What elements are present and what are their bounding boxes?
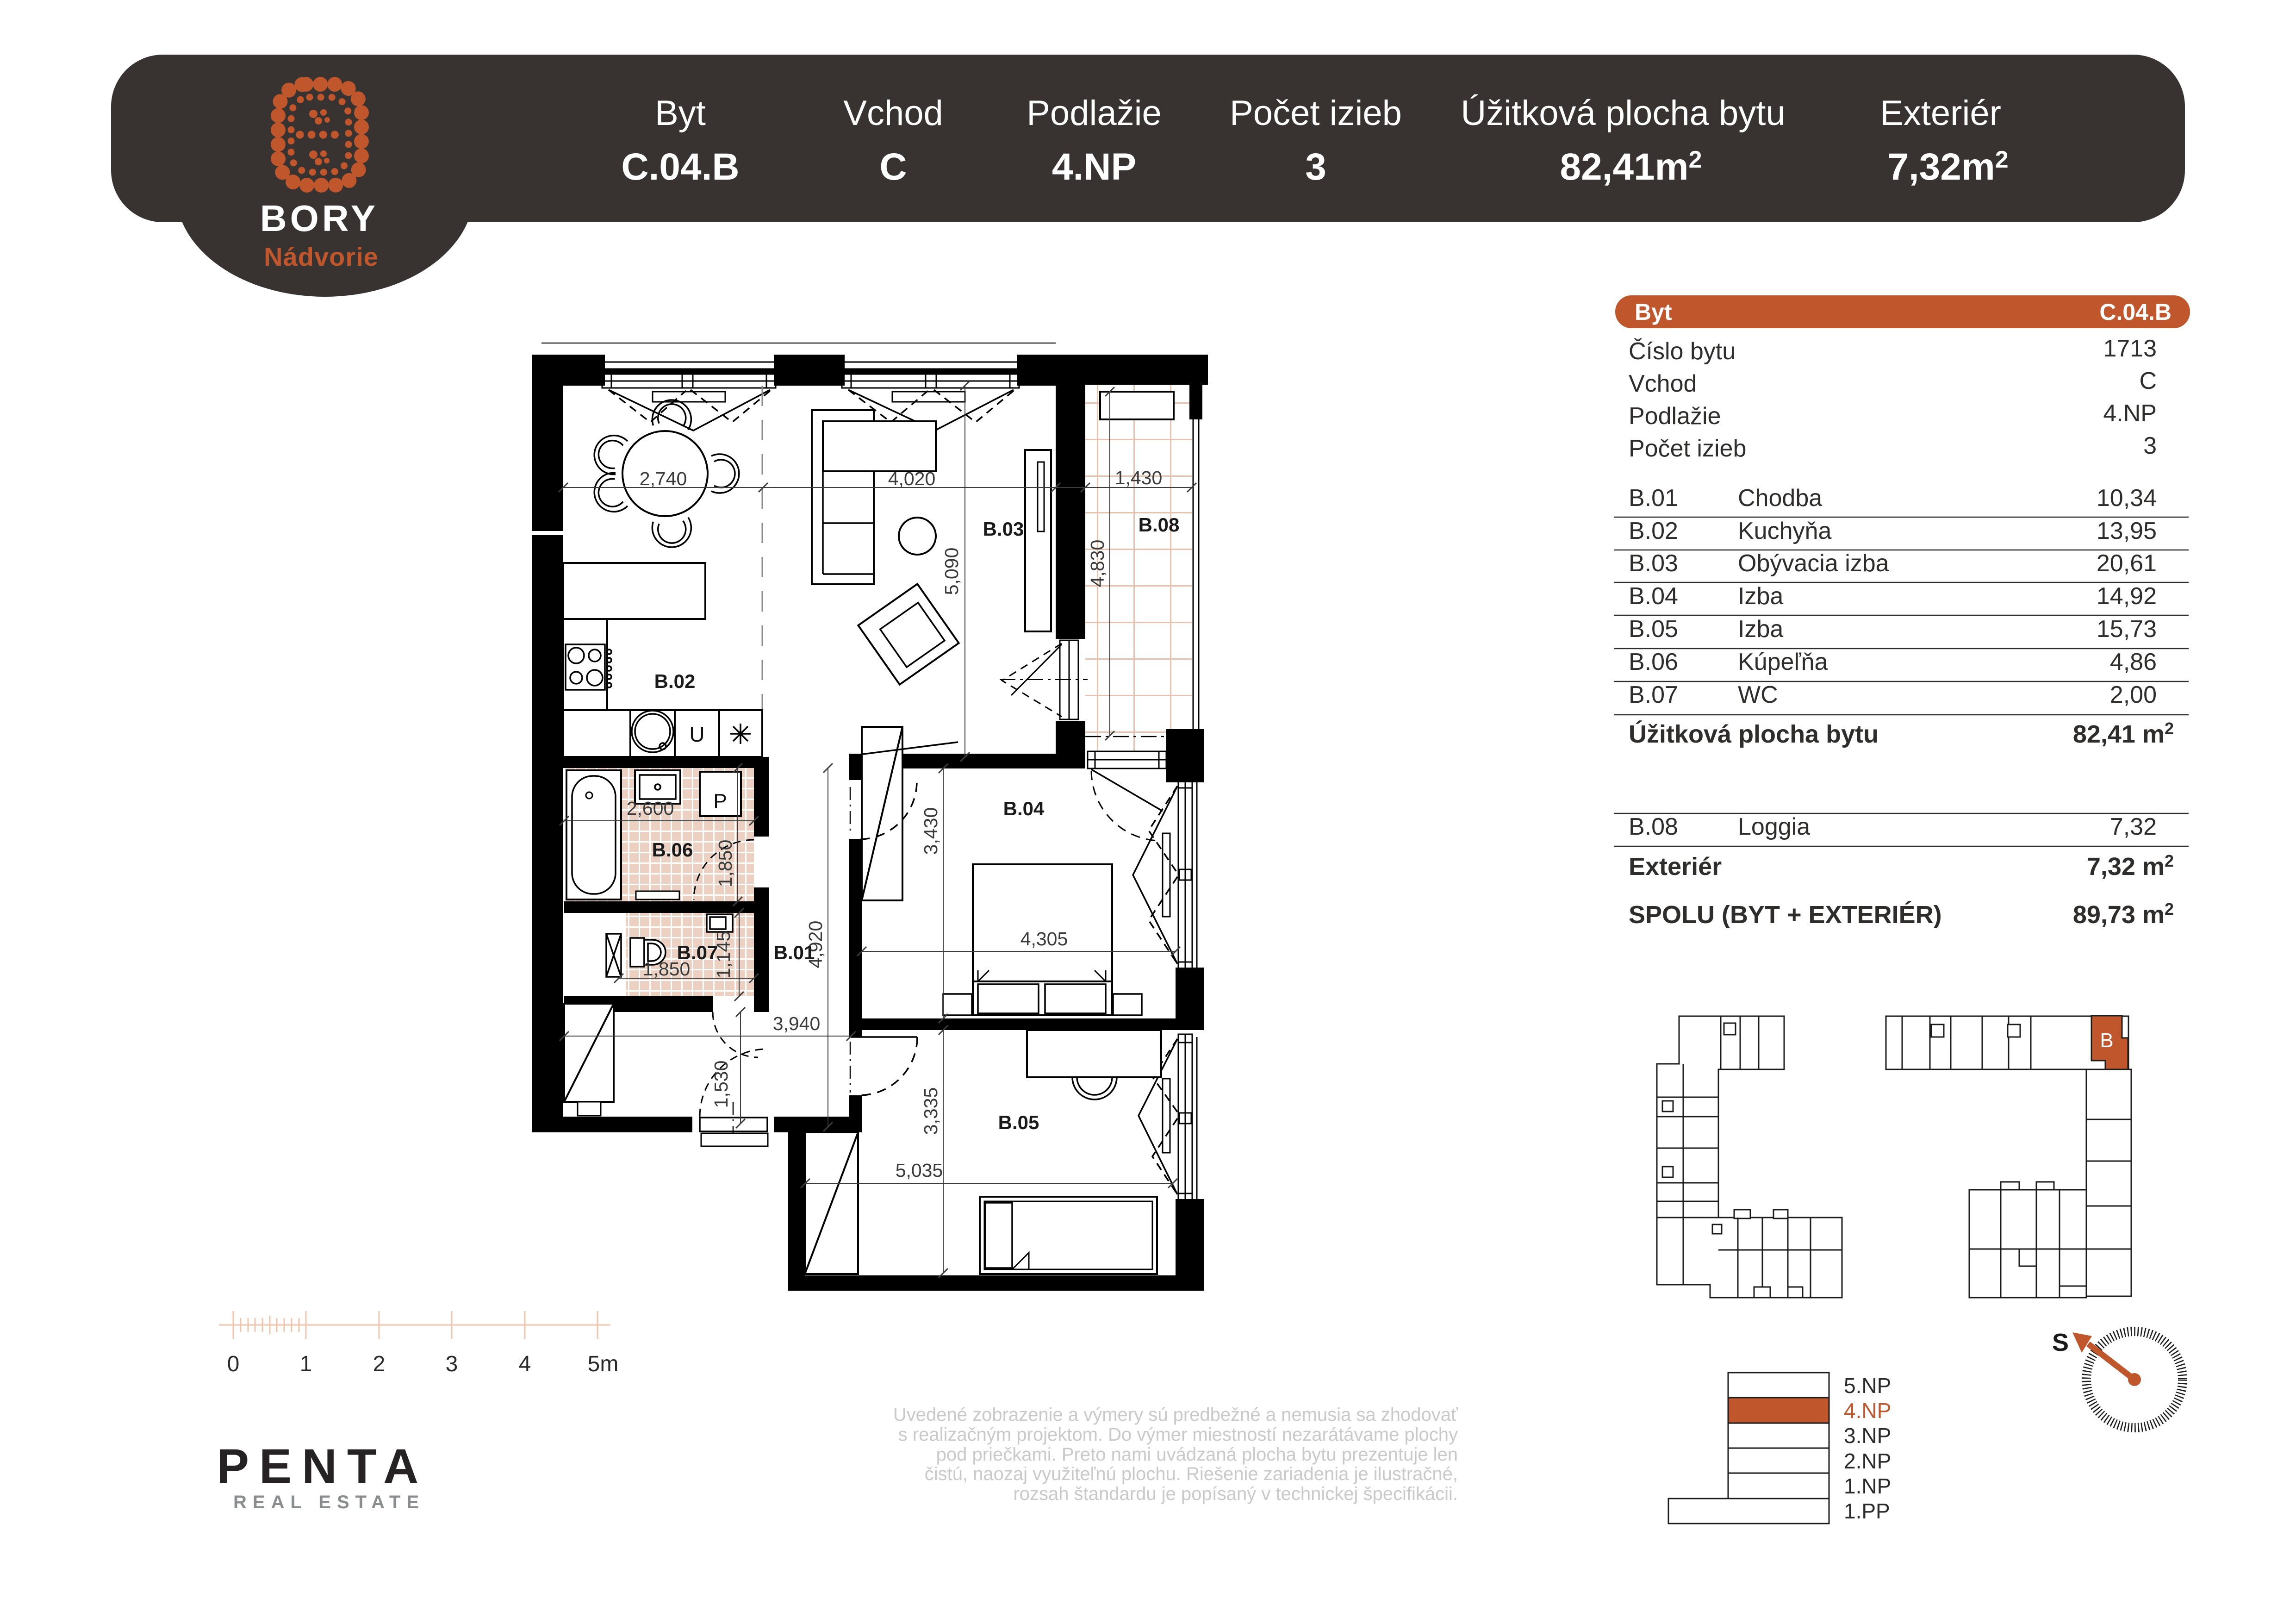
svg-text:Číslo bytu: Číslo bytu bbox=[1629, 338, 1736, 365]
svg-text:4,305: 4,305 bbox=[1020, 928, 1068, 949]
svg-text:B.04: B.04 bbox=[1003, 798, 1045, 819]
svg-text:1.PP: 1.PP bbox=[1844, 1499, 1890, 1523]
svg-text:Nádvorie: Nádvorie bbox=[264, 242, 379, 271]
svg-text:14,92: 14,92 bbox=[2097, 583, 2157, 610]
svg-text:89,73 m2: 89,73 m2 bbox=[2073, 899, 2174, 929]
svg-text:P: P bbox=[713, 790, 727, 812]
svg-text:Počet izieb: Počet izieb bbox=[1629, 435, 1746, 462]
svg-text:3,430: 3,430 bbox=[920, 807, 941, 855]
svg-text:Podlažie: Podlažie bbox=[1027, 94, 1162, 133]
svg-text:7,32 m2: 7,32 m2 bbox=[2087, 851, 2174, 881]
svg-text:B: B bbox=[2100, 1029, 2113, 1052]
svg-text:3,335: 3,335 bbox=[920, 1087, 941, 1135]
svg-text:Vchod: Vchod bbox=[843, 94, 943, 133]
svg-text:2,00: 2,00 bbox=[2110, 681, 2157, 708]
svg-text:C: C bbox=[2139, 368, 2157, 394]
svg-text:2.NP: 2.NP bbox=[1844, 1449, 1891, 1473]
svg-text:15,73: 15,73 bbox=[2097, 616, 2157, 643]
svg-text:B.06: B.06 bbox=[1629, 649, 1678, 675]
svg-text:C.04.B: C.04.B bbox=[621, 146, 739, 188]
svg-text:82,41 m2: 82,41 m2 bbox=[2073, 719, 2174, 748]
svg-text:2,600: 2,600 bbox=[627, 798, 674, 819]
svg-text:Vchod: Vchod bbox=[1629, 370, 1697, 397]
svg-text:B.08: B.08 bbox=[1139, 514, 1180, 536]
svg-text:Byt: Byt bbox=[655, 94, 706, 133]
svg-text:S: S bbox=[2052, 1329, 2069, 1356]
svg-text:PENTA: PENTA bbox=[217, 1439, 429, 1493]
svg-text:2: 2 bbox=[373, 1352, 386, 1376]
svg-text:3.NP: 3.NP bbox=[1844, 1424, 1891, 1448]
svg-text:B.03: B.03 bbox=[983, 518, 1024, 540]
svg-text:2,740: 2,740 bbox=[640, 468, 687, 489]
svg-text:1,530: 1,530 bbox=[710, 1061, 732, 1108]
svg-text:Úžitková plocha bytu: Úžitková plocha bytu bbox=[1461, 94, 1785, 133]
svg-text:BORY: BORY bbox=[260, 198, 379, 239]
svg-text:0: 0 bbox=[227, 1352, 240, 1376]
svg-text:3: 3 bbox=[2143, 432, 2157, 459]
svg-text:1,850: 1,850 bbox=[715, 840, 736, 887]
svg-text:1.NP: 1.NP bbox=[1844, 1474, 1891, 1498]
svg-text:13,95: 13,95 bbox=[2097, 518, 2157, 544]
svg-text:3: 3 bbox=[446, 1352, 458, 1376]
svg-text:pod priečkami. Preto nami uvád: pod priečkami. Preto nami uvádzaná ploch… bbox=[936, 1444, 1458, 1465]
svg-text:Chodba: Chodba bbox=[1738, 485, 1822, 512]
svg-text:REAL ESTATE: REAL ESTATE bbox=[233, 1492, 425, 1512]
svg-text:WC: WC bbox=[1738, 681, 1778, 708]
svg-text:B.03: B.03 bbox=[1629, 550, 1678, 577]
svg-text:3,940: 3,940 bbox=[773, 1013, 821, 1034]
svg-text:B.02: B.02 bbox=[654, 670, 696, 692]
svg-text:4,020: 4,020 bbox=[888, 468, 936, 489]
svg-text:Izba: Izba bbox=[1738, 583, 1783, 610]
svg-text:5,035: 5,035 bbox=[896, 1160, 943, 1181]
svg-text:4,830: 4,830 bbox=[1087, 540, 1108, 587]
svg-text:B.06: B.06 bbox=[652, 839, 693, 861]
svg-text:Úžitková plocha bytu: Úžitková plocha bytu bbox=[1629, 720, 1879, 748]
svg-text:B.07: B.07 bbox=[1629, 681, 1678, 708]
svg-text:7,32m2: 7,32m2 bbox=[1887, 146, 2008, 188]
svg-text:4,86: 4,86 bbox=[2110, 649, 2157, 675]
svg-text:U: U bbox=[689, 722, 704, 746]
svg-text:Uvedené zobrazenie a výmery sú: Uvedené zobrazenie a výmery sú predbežné… bbox=[893, 1405, 1458, 1425]
svg-text:4.NP: 4.NP bbox=[2103, 400, 2157, 427]
svg-text:10,34: 10,34 bbox=[2097, 485, 2157, 512]
svg-text:Obývacia izba: Obývacia izba bbox=[1738, 550, 1889, 577]
svg-text:82,41m2: 82,41m2 bbox=[1560, 146, 1702, 188]
svg-text:Podlažie: Podlažie bbox=[1629, 403, 1721, 430]
svg-text:B.01: B.01 bbox=[774, 942, 815, 963]
svg-text:Byt: Byt bbox=[1635, 299, 1672, 325]
svg-text:SPOLU (BYT + EXTERIÉR): SPOLU (BYT + EXTERIÉR) bbox=[1629, 901, 1942, 929]
svg-text:Počet izieb: Počet izieb bbox=[1230, 94, 1402, 133]
svg-text:B.07: B.07 bbox=[677, 942, 718, 963]
svg-text:Exteriér: Exteriér bbox=[1880, 94, 2001, 133]
svg-text:1713: 1713 bbox=[2103, 335, 2157, 362]
svg-text:rozsah štandardu je popísaný v: rozsah štandardu je popísaný v technicke… bbox=[1013, 1484, 1458, 1504]
svg-text:5m: 5m bbox=[588, 1352, 619, 1376]
svg-text:B.02: B.02 bbox=[1629, 518, 1678, 544]
svg-text:4.NP: 4.NP bbox=[1844, 1399, 1891, 1423]
svg-text:C: C bbox=[879, 146, 907, 188]
svg-text:Izba: Izba bbox=[1738, 616, 1783, 643]
svg-text:5.NP: 5.NP bbox=[1844, 1374, 1891, 1398]
svg-text:4: 4 bbox=[519, 1352, 531, 1376]
svg-text:Loggia: Loggia bbox=[1738, 813, 1810, 840]
svg-text:3: 3 bbox=[1305, 146, 1326, 188]
svg-text:Kuchyňa: Kuchyňa bbox=[1738, 518, 1831, 544]
svg-text:B.05: B.05 bbox=[1629, 616, 1678, 643]
svg-text:Exteriér: Exteriér bbox=[1629, 853, 1722, 881]
svg-text:Kúpeľňa: Kúpeľňa bbox=[1738, 649, 1828, 675]
svg-text:7,32: 7,32 bbox=[2110, 813, 2157, 840]
svg-text:C.04.B: C.04.B bbox=[2099, 299, 2172, 325]
svg-text:B.05: B.05 bbox=[998, 1112, 1039, 1133]
svg-text:B.04: B.04 bbox=[1629, 583, 1678, 610]
svg-text:20,61: 20,61 bbox=[2097, 550, 2157, 577]
svg-text:čistú, naozaj využiteľnú ploch: čistú, naozaj využiteľnú plochu. Riešeni… bbox=[925, 1464, 1458, 1484]
svg-text:B.08: B.08 bbox=[1629, 813, 1678, 840]
svg-text:s realizačným projektom. Do vý: s realizačným projektom. Do výmer miestn… bbox=[898, 1424, 1458, 1445]
svg-text:1,430: 1,430 bbox=[1115, 467, 1163, 488]
svg-text:1: 1 bbox=[300, 1352, 312, 1376]
svg-text:B.01: B.01 bbox=[1629, 485, 1678, 512]
svg-text:4.NP: 4.NP bbox=[1052, 146, 1136, 188]
svg-text:5,090: 5,090 bbox=[941, 548, 962, 595]
